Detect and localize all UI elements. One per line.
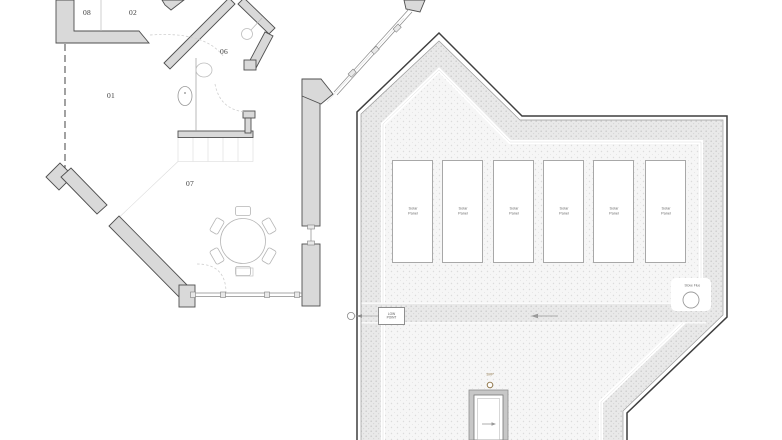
- dining-set: [209, 207, 276, 276]
- solar-panel-label: Solar Panel: [606, 207, 620, 217]
- solar-panel-label: Solar Panel: [455, 207, 469, 217]
- kitchen-counter: [110, 138, 253, 227]
- svp-label: SVP: [479, 371, 501, 379]
- window-mullion: [308, 241, 315, 245]
- wall-under-bath: [178, 131, 253, 138]
- wall-glazing-pier-top: [404, 0, 425, 12]
- wc-icon: [178, 87, 192, 106]
- shower-head-icon: [242, 29, 253, 40]
- window-mullion: [348, 69, 356, 77]
- gutter-channel: [361, 304, 706, 322]
- wall-top-left: [56, 0, 149, 43]
- wall-bath-door-jamb-a: [243, 111, 255, 118]
- solar-panel-5: Solar Panel: [593, 160, 634, 263]
- door-swing-living: [197, 264, 226, 293]
- solar-panel-label: Solar Panel: [405, 207, 419, 217]
- solar-panel-label: Solar Panel: [658, 207, 672, 217]
- chair: [236, 207, 251, 216]
- rooflight: [469, 390, 508, 440]
- wall-diag-seg1: [61, 168, 107, 214]
- solar-panel-2: Solar Panel: [442, 160, 483, 263]
- wall-bath-notch: [244, 60, 256, 70]
- low-point-label: LOW POINT: [378, 307, 405, 325]
- solar-panel-1: Solar Panel: [392, 160, 433, 263]
- room-label-01: 01: [107, 91, 115, 100]
- stove-flue-circle: [683, 292, 699, 308]
- window-mullion: [221, 292, 226, 298]
- window-band-south: [191, 292, 303, 298]
- window-right-gap: [308, 225, 315, 245]
- wall-top-wedge: [162, 0, 184, 10]
- solar-panel-label: Solar Panel: [556, 207, 570, 217]
- basin-icon: [196, 63, 212, 77]
- svp-circle: [487, 382, 493, 388]
- wall-bath-door-jamb-b: [245, 118, 251, 133]
- wall-right-lower: [302, 244, 320, 306]
- stove-flue-label: Stove Flue: [674, 281, 710, 290]
- room-label-02: 02: [129, 8, 137, 17]
- wall-bath-upper: [238, 0, 275, 34]
- solar-panel-6: Solar Panel: [645, 160, 686, 263]
- low-point-marker-circle: [347, 312, 354, 319]
- room-label-06: 06: [220, 47, 228, 56]
- solar-panel-3: Solar Panel: [493, 160, 534, 263]
- window-mullion: [371, 46, 379, 54]
- window-mullion: [308, 225, 315, 229]
- room-label-08: 08: [83, 8, 91, 17]
- plan-sheet: 01 02 06 07 08 Solar Panel Solar Panel S…: [0, 0, 782, 440]
- solar-panel-4: Solar Panel: [543, 160, 584, 263]
- rooflight-glass: [474, 395, 503, 440]
- window-mullion: [295, 292, 300, 298]
- window-mullion: [191, 292, 196, 298]
- solar-panel-label: Solar Panel: [506, 207, 520, 217]
- room-label-07: 07: [186, 179, 194, 188]
- window-mullion: [265, 292, 270, 298]
- door-swing-bath: [215, 84, 246, 112]
- dining-table: [221, 219, 266, 264]
